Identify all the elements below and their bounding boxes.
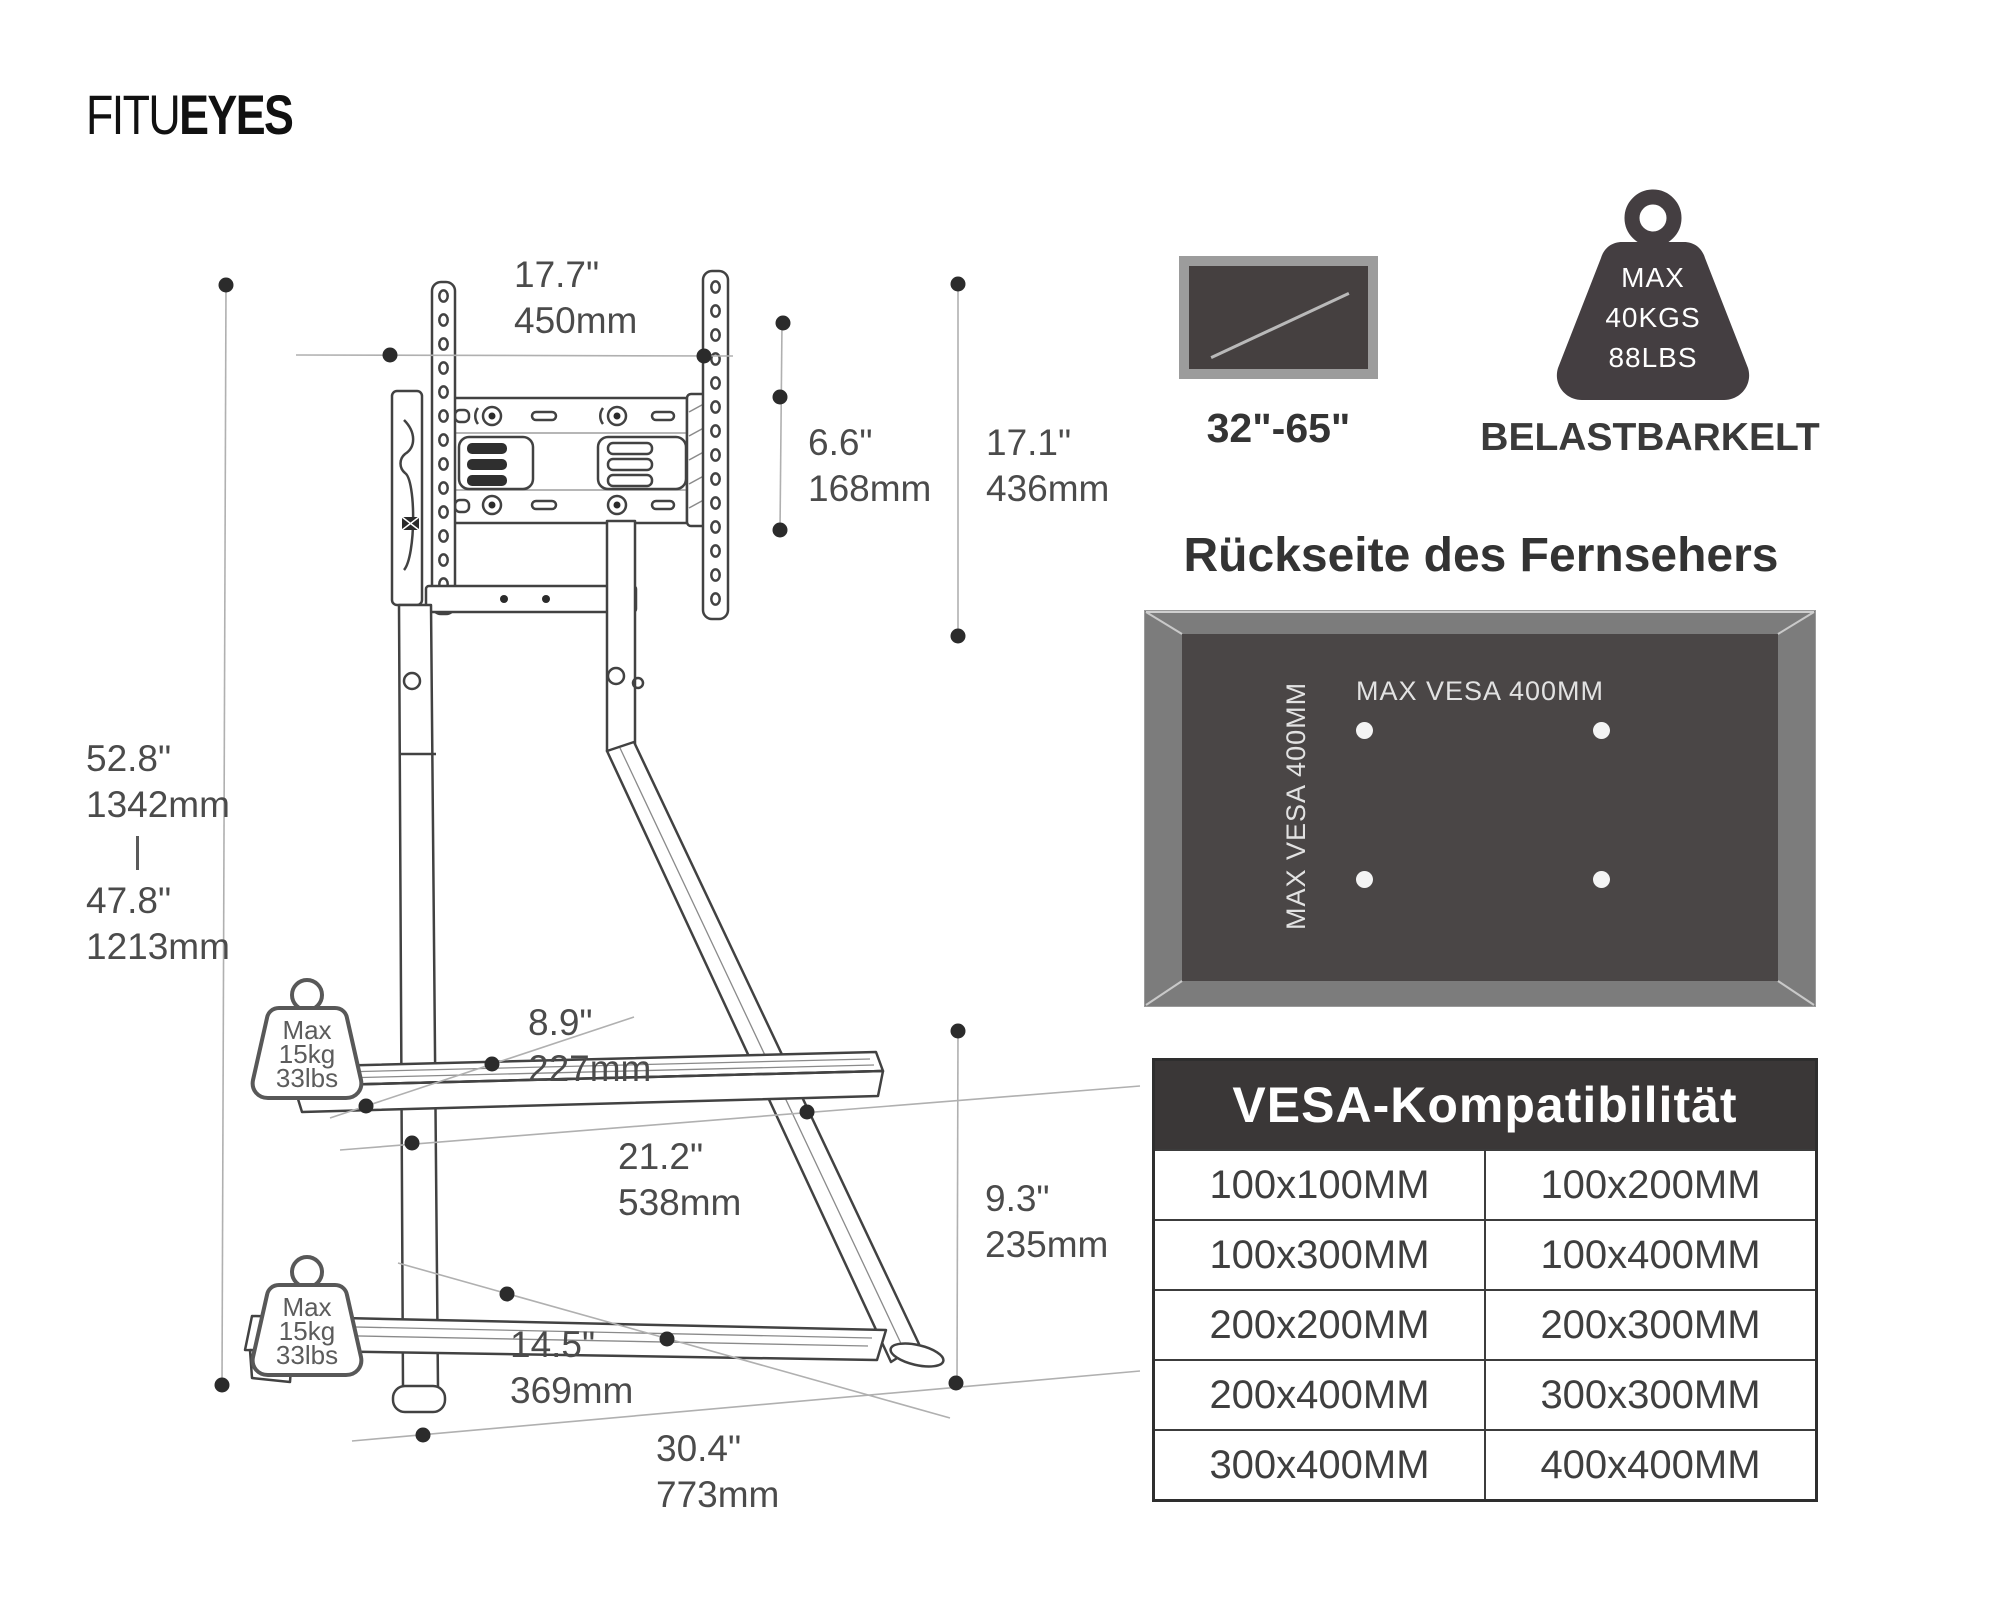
vesa-cell: 100x200MM	[1485, 1150, 1817, 1220]
dim-shelf-depth: 8.9" 227mm	[528, 1000, 651, 1092]
dim-base-width-mm: 773mm	[656, 1472, 779, 1518]
vesa-cell: 100x100MM	[1154, 1150, 1486, 1220]
table-row: 200x400MM 300x300MM	[1154, 1360, 1817, 1430]
right-foot	[888, 1339, 945, 1371]
vesa-cell: 200x200MM	[1154, 1290, 1486, 1360]
table-header-row: VESA-Kompatibilität	[1154, 1060, 1817, 1151]
dim-shelf-width-mm: 538mm	[618, 1180, 741, 1226]
capacity-caption: BELASTBARKELT	[1450, 416, 1850, 460]
vesa-hole-top-right	[1593, 722, 1610, 739]
dim-mount-height: 17.1" 436mm	[986, 420, 1109, 512]
vesa-cell: 300x400MM	[1154, 1430, 1486, 1501]
max-load-text: MAX 40KGS 88LBS	[1556, 258, 1750, 378]
vesa-cell: 100x300MM	[1154, 1220, 1486, 1290]
vesa-arm-left	[432, 282, 455, 614]
stand-left-leg	[399, 605, 438, 1388]
vesa-arm-right	[703, 271, 728, 619]
table-row: 100x300MM 100x400MM	[1154, 1220, 1817, 1290]
max-load-line3: 88LBS	[1556, 338, 1750, 378]
max-load-line1: MAX	[1556, 258, 1750, 298]
dim-top-width: 17.7" 450mm	[514, 252, 637, 344]
dim-shelf-depth-inches: 8.9"	[528, 1000, 651, 1046]
vesa-compatibility-table: VESA-Kompatibilität 100x100MM 100x200MM …	[1152, 1058, 1818, 1502]
dim-height-max-mm: 1342mm	[86, 782, 230, 828]
tv-screen-icon-inner	[1189, 266, 1368, 369]
max-load-line2: 40KGS	[1556, 298, 1750, 338]
vesa-cell: 200x300MM	[1485, 1290, 1817, 1360]
tv-back-panel: MAX VESA 400MM MAX VESA 400MM	[1144, 610, 1816, 1007]
dim-height-range: 52.8" 1342mm 47.8" 1213mm	[86, 736, 230, 970]
dim-top-width-mm: 450mm	[514, 298, 637, 344]
vesa-cell: 200x400MM	[1154, 1360, 1486, 1430]
stand-crossbar	[426, 586, 636, 612]
vesa-hole-bottom-left	[1356, 871, 1373, 888]
dim-base-shelf-depth: 14.5" 369mm	[510, 1322, 633, 1414]
dim-base-shelf-depth-mm: 369mm	[510, 1368, 633, 1414]
vesa-cell: 400x400MM	[1485, 1430, 1817, 1501]
max-vesa-horizontal-label: MAX VESA 400MM	[1144, 676, 1816, 707]
table-row: 200x200MM 200x300MM	[1154, 1290, 1817, 1360]
dim-shelf-width-inches: 21.2"	[618, 1134, 741, 1180]
dim-height-max-inches: 52.8"	[86, 736, 230, 782]
dim-bracket-height-inches: 6.6"	[808, 420, 931, 466]
stand-column	[607, 521, 635, 751]
dim-bracket-height-mm: 168mm	[808, 466, 931, 512]
dim-base-shelf-depth-inches: 14.5"	[510, 1322, 633, 1368]
left-foot	[393, 1386, 445, 1412]
dim-bottom-height-inches: 9.3"	[985, 1176, 1108, 1222]
dim-bottom-height: 9.3" 235mm	[985, 1176, 1108, 1268]
vesa-hole-top-left	[1356, 722, 1373, 739]
tv-back-panel-bevel	[1144, 610, 1816, 1007]
product-infographic: FITUEYES	[0, 0, 2000, 1600]
shelf-capacity-label-2: Max 15kg 33lbs	[247, 1295, 367, 1367]
screen-size-range: 32"-65"	[1179, 405, 1378, 452]
dim-bracket-height: 6.6" 168mm	[808, 420, 931, 512]
table-row: 100x100MM 100x200MM	[1154, 1150, 1817, 1220]
dim-top-width-inches: 17.7"	[514, 252, 637, 298]
dim-mount-height-inches: 17.1"	[986, 420, 1109, 466]
dim-mount-height-mm: 436mm	[986, 466, 1109, 512]
max-vesa-vertical-label: MAX VESA 400MM	[1281, 700, 1308, 930]
dim-bottom-height-mm: 235mm	[985, 1222, 1108, 1268]
dim-shelf-width: 21.2" 538mm	[618, 1134, 741, 1226]
shelf-capacity-label-1: Max 15kg 33lbs	[247, 1018, 367, 1090]
dim-height-min-mm: 1213mm	[86, 924, 230, 970]
dim-shelf-depth-mm: 227mm	[528, 1046, 651, 1092]
back-panel-heading: Rückseite des Fernsehers	[1145, 528, 1817, 583]
dim-base-width: 30.4" 773mm	[656, 1426, 779, 1518]
dim-base-width-inches: 30.4"	[656, 1426, 779, 1472]
table-row: 300x400MM 400x400MM	[1154, 1430, 1817, 1501]
tv-diagonal-icon	[1210, 292, 1349, 359]
vesa-hole-bottom-right	[1593, 871, 1610, 888]
vesa-cell: 100x400MM	[1485, 1220, 1817, 1290]
dim-height-min-inches: 47.8"	[86, 878, 230, 924]
shelf-capacity-1-line3: 33lbs	[247, 1066, 367, 1090]
vesa-cell: 300x300MM	[1485, 1360, 1817, 1430]
shelf-capacity-2-line3: 33lbs	[247, 1343, 367, 1367]
height-range-tick	[136, 836, 139, 870]
vesa-table-title: VESA-Kompatibilität	[1154, 1060, 1817, 1151]
tv-screen-icon	[1179, 256, 1378, 379]
